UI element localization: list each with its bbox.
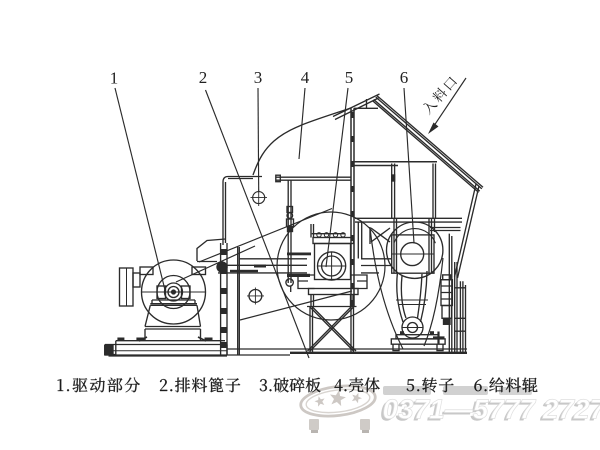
svg-text:3: 3: [254, 68, 263, 87]
svg-text:4: 4: [301, 68, 310, 87]
svg-text:0371—5777 2727: 0371—5777 2727: [383, 394, 600, 425]
svg-text:5: 5: [345, 68, 354, 87]
svg-text:1: 1: [110, 69, 119, 88]
svg-text:6: 6: [400, 68, 409, 87]
svg-text:2: 2: [199, 68, 208, 87]
